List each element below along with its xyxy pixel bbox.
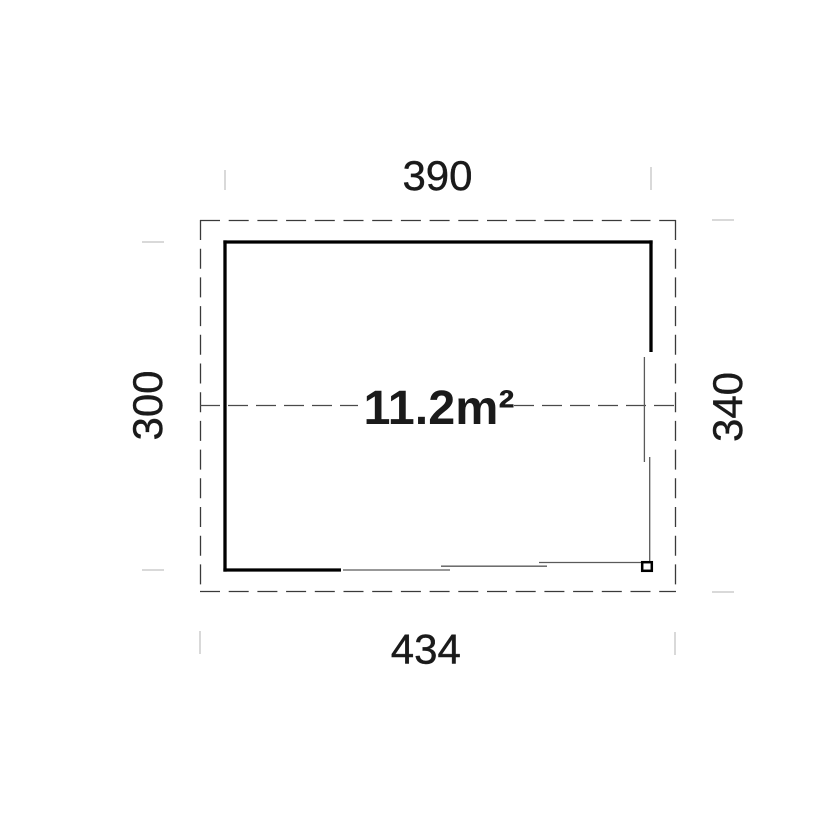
svg-text:300: 300: [124, 370, 171, 440]
svg-text:434: 434: [391, 626, 461, 673]
svg-text:340: 340: [704, 372, 751, 442]
svg-text:11.2m²: 11.2m²: [364, 381, 515, 435]
svg-text:390: 390: [402, 152, 472, 199]
